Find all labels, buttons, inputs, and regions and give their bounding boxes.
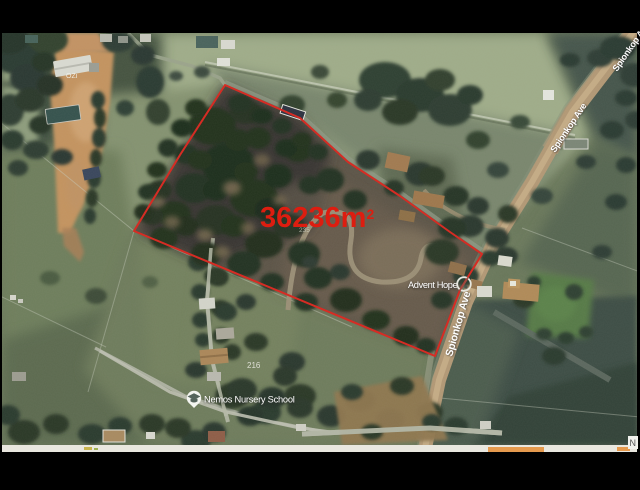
svg-text:Nemos Nursery School: Nemos Nursery School	[204, 395, 295, 405]
svg-text:235: 235	[299, 227, 310, 234]
svg-text:OZi: OZi	[66, 73, 78, 80]
svg-text:216: 216	[247, 361, 261, 370]
svg-text:36236m2: 36236m2	[260, 202, 374, 234]
svg-text:Advent Hope: Advent Hope	[408, 280, 458, 290]
svg-text:N: N	[630, 438, 637, 448]
